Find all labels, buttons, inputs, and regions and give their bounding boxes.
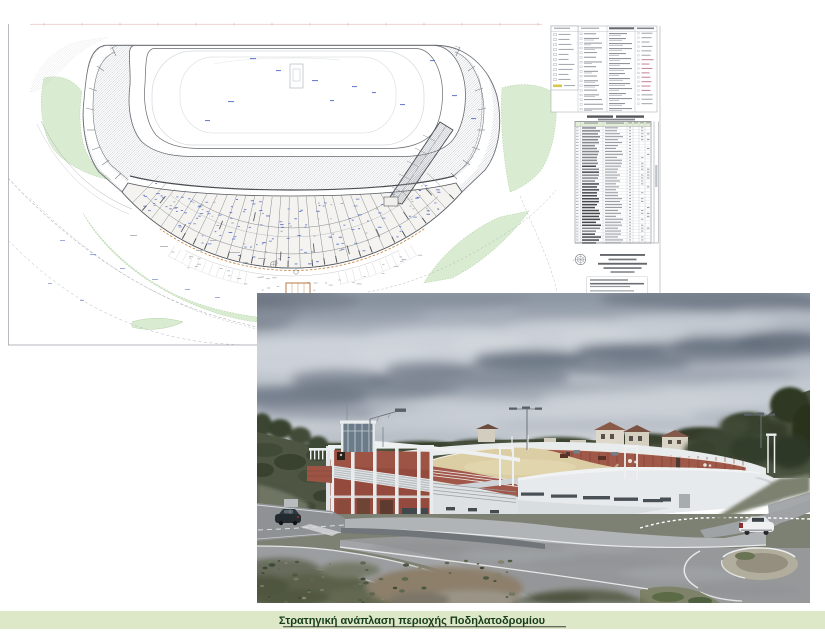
svg-text:Στρατηγική ανάπλαση περιοχής Π: Στρατηγική ανάπλαση περιοχής Ποδηλατοδρο…: [279, 615, 545, 627]
